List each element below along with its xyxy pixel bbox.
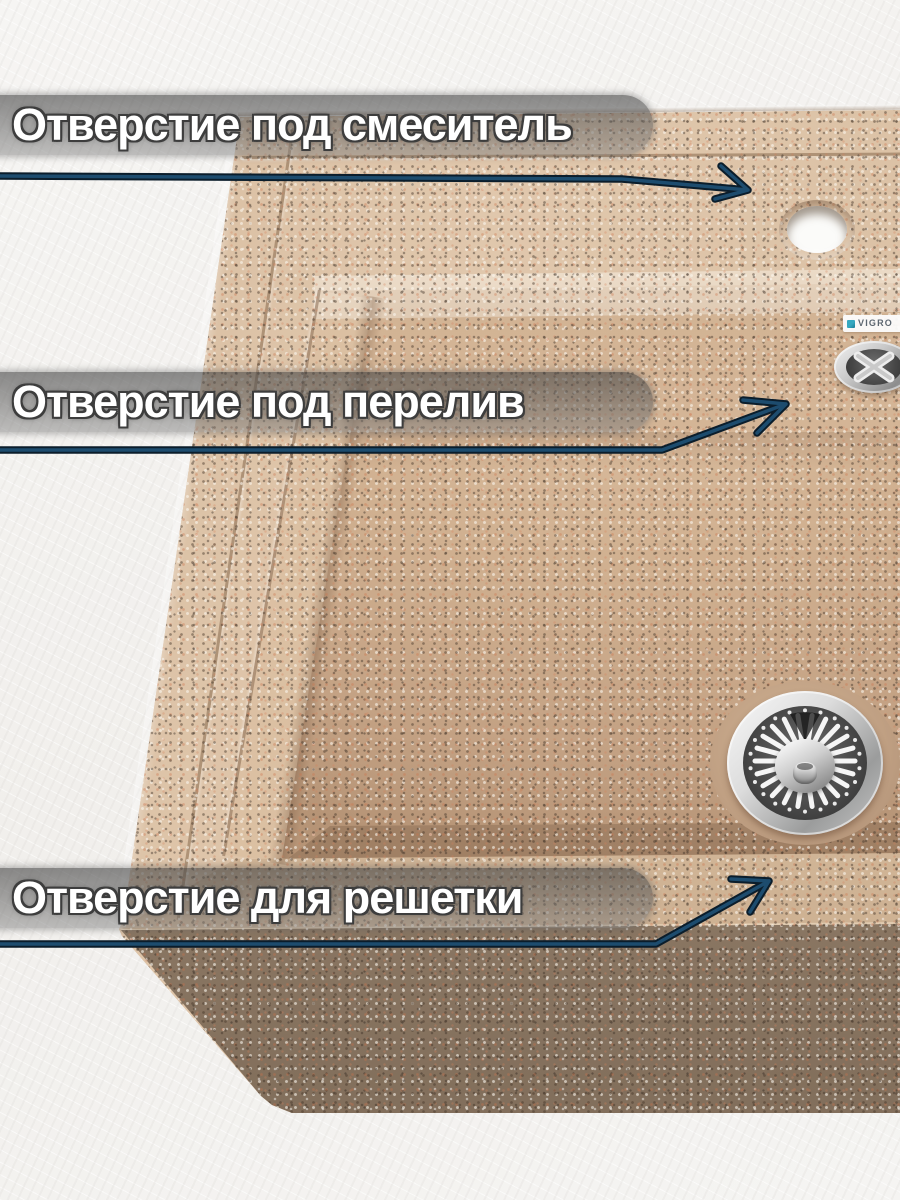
annotation-bar-drain: Отверстие для решетки bbox=[0, 868, 653, 928]
annotation-bar-faucet: Отверстие под смеситель bbox=[0, 95, 653, 155]
annotation-label-overflow: Отверстие под перелив bbox=[12, 376, 524, 428]
annotation-label-faucet: Отверстие под смеситель bbox=[12, 99, 572, 151]
annotation-bar-overflow: Отверстие под перелив bbox=[0, 372, 653, 432]
brand-logo-text: VIGRO bbox=[858, 319, 893, 328]
brand-label: VIGRO bbox=[843, 315, 900, 332]
drain-knob bbox=[793, 762, 817, 784]
product-photo-sink: VIGRO Отверстие под смеситель Отверстие … bbox=[0, 0, 900, 1200]
faucet-hole bbox=[787, 206, 847, 253]
annotation-label-drain: Отверстие для решетки bbox=[12, 872, 522, 924]
overflow-cross-icon bbox=[846, 349, 900, 385]
brand-logo-icon bbox=[847, 320, 855, 328]
